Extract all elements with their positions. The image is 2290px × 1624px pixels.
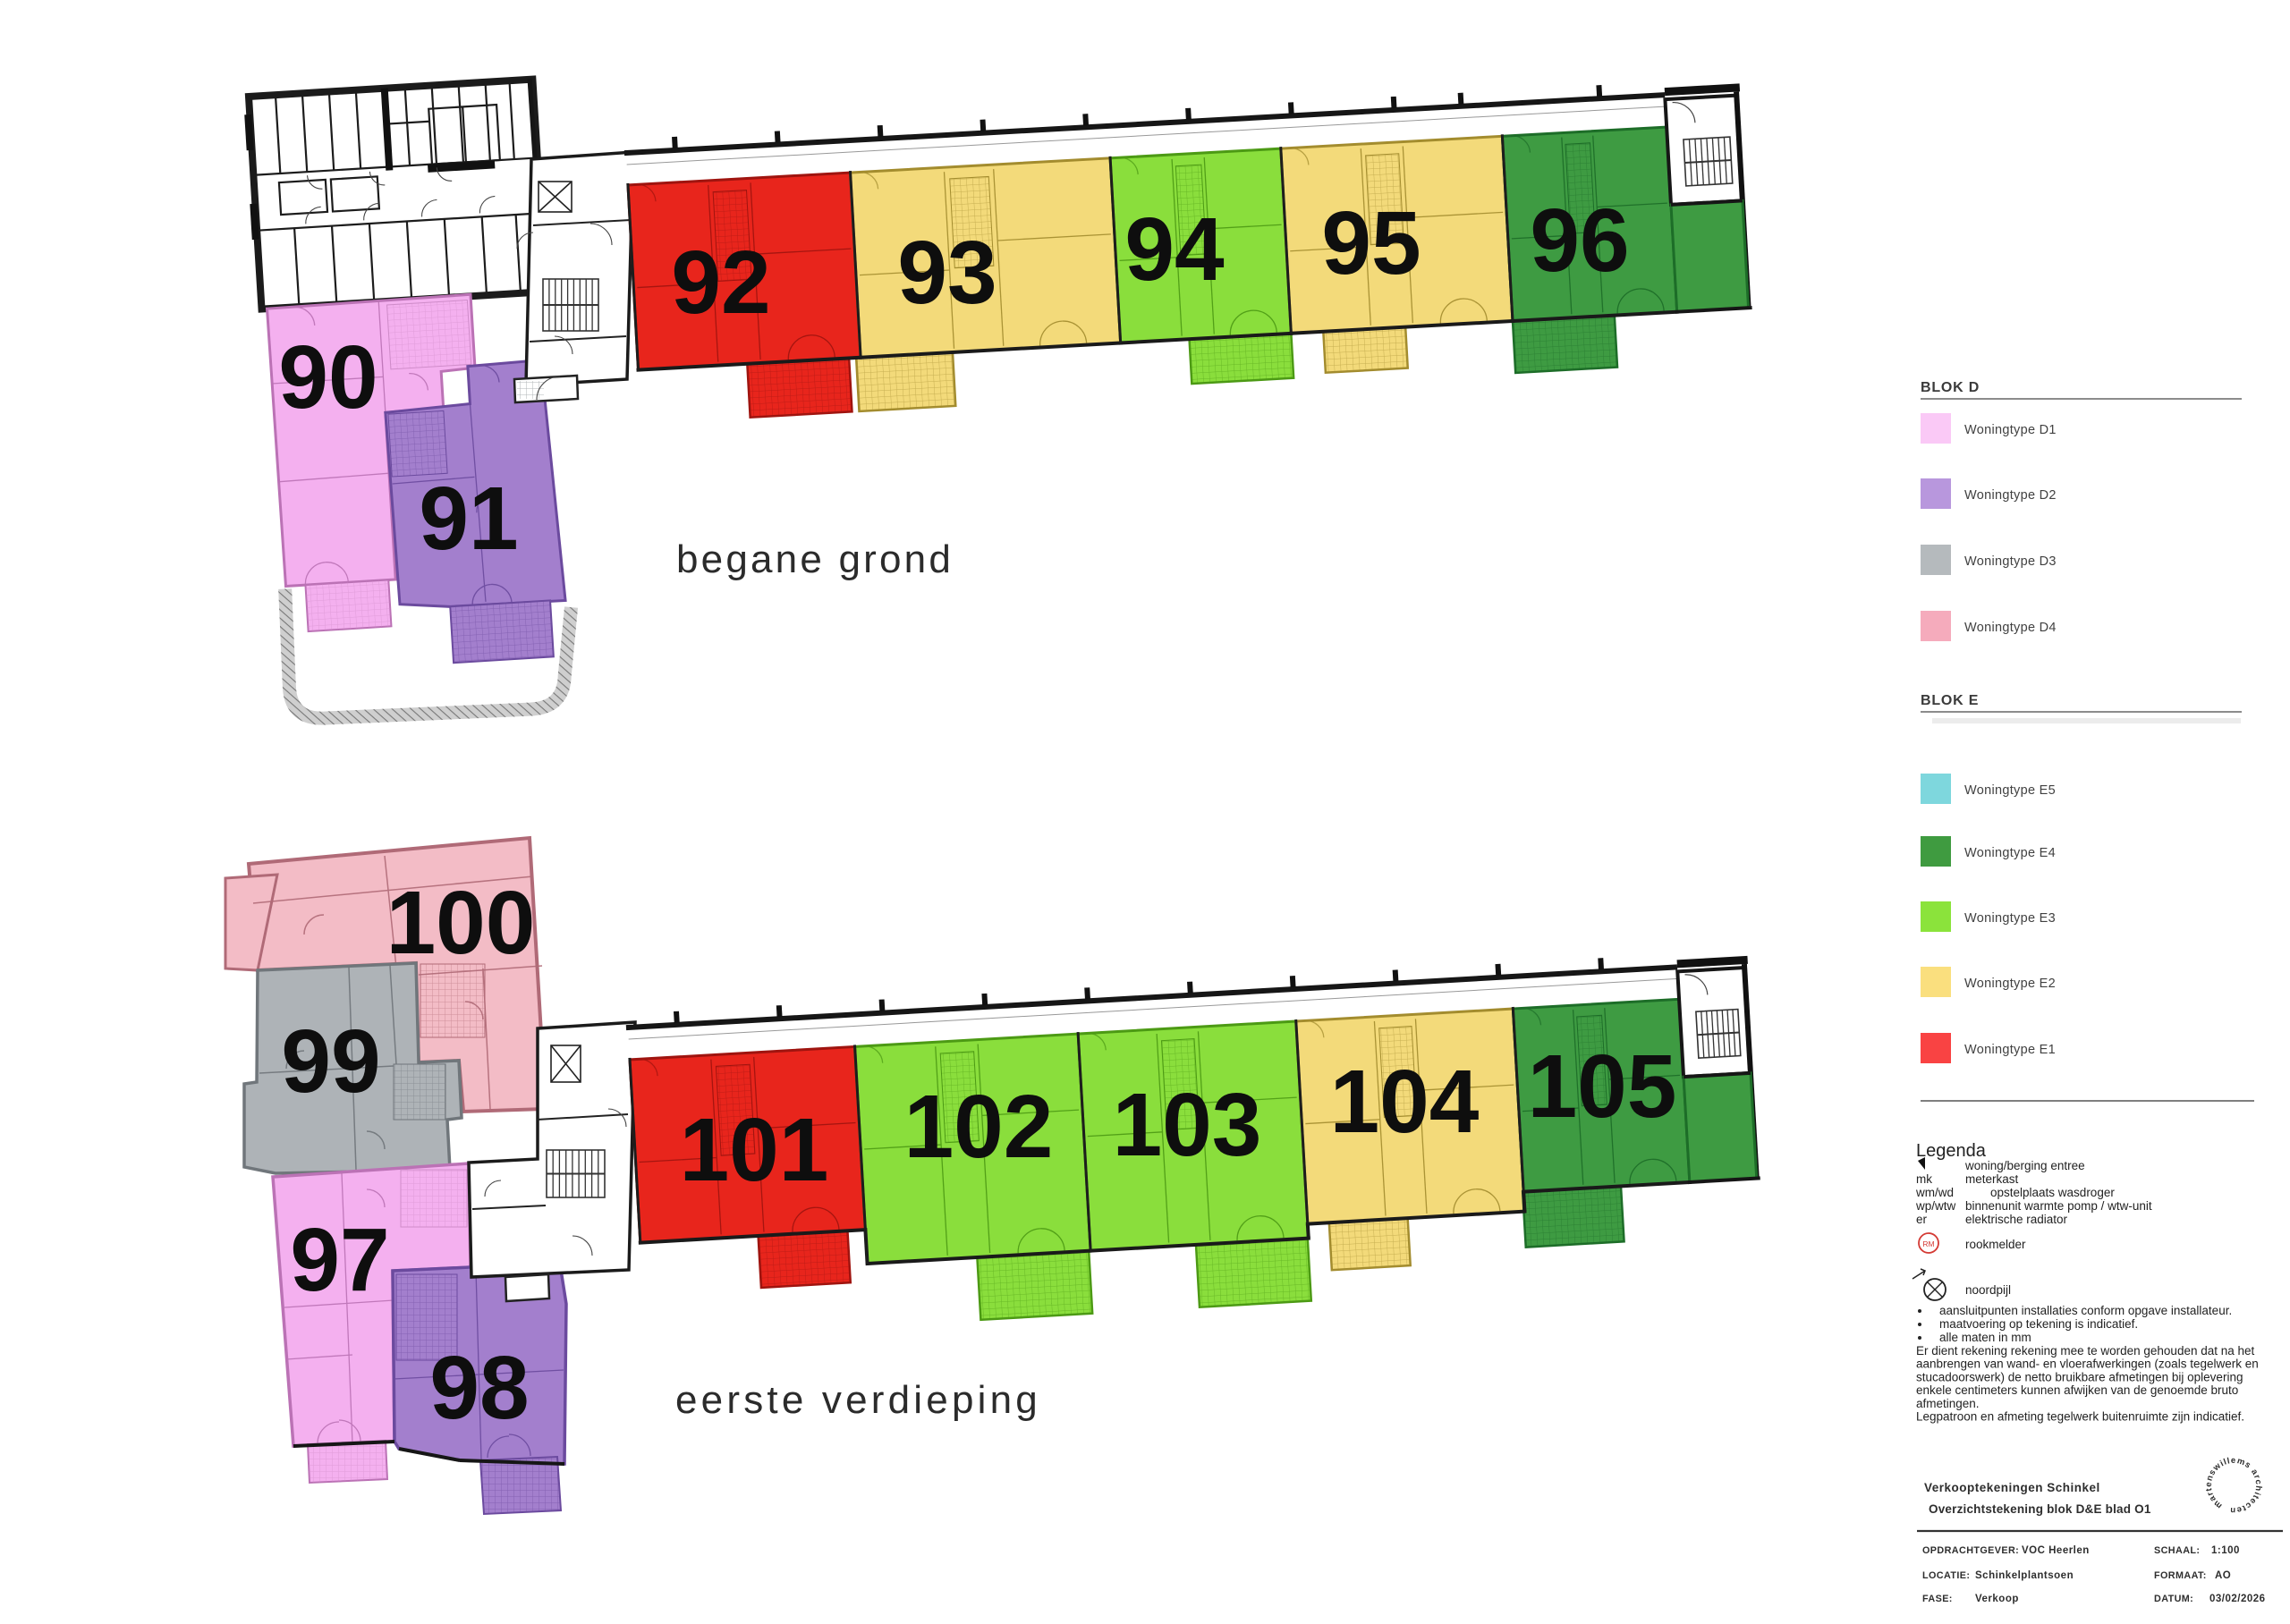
svg-text:BLOK D: BLOK D <box>1921 380 1980 395</box>
svg-text:afmetingen.: afmetingen. <box>1916 1397 1980 1410</box>
svg-text:wm/wd: wm/wd <box>1915 1186 1954 1199</box>
svg-text:Verkooptekeningen Schinkel: Verkooptekeningen Schinkel <box>1924 1481 2100 1494</box>
svg-text:opstelplaats wasdroger: opstelplaats wasdroger <box>1990 1186 2115 1199</box>
svg-text:103: 103 <box>1113 1075 1262 1175</box>
svg-text:95: 95 <box>1321 193 1421 293</box>
svg-text:Legenda: Legenda <box>1916 1141 1987 1161</box>
svg-text:03/02/2026: 03/02/2026 <box>2209 1594 2266 1604</box>
svg-text:Woningtype D4: Woningtype D4 <box>1964 621 2057 635</box>
svg-text:stucadoorswerk) de netto bruik: stucadoorswerk) de netto bruikbare afmet… <box>1916 1370 2243 1383</box>
svg-text:102: 102 <box>904 1077 1054 1177</box>
svg-text:alle maten in mm: alle maten in mm <box>1939 1331 2031 1344</box>
svg-text:FORMAAT:: FORMAAT: <box>2154 1570 2207 1581</box>
svg-text:BLOK E: BLOK E <box>1921 693 1979 708</box>
svg-text:maatvoering op tekening is ind: maatvoering op tekening is indicatief. <box>1939 1317 2138 1331</box>
svg-text:er: er <box>1916 1213 1928 1226</box>
svg-text:97: 97 <box>290 1210 389 1310</box>
svg-text:VOC Heerlen: VOC Heerlen <box>2022 1545 2090 1556</box>
svg-text:98: 98 <box>429 1338 529 1438</box>
svg-text:wp/wtw: wp/wtw <box>1915 1199 1956 1213</box>
svg-text:96: 96 <box>1530 190 1629 291</box>
svg-text:1:100: 1:100 <box>2211 1545 2240 1556</box>
svg-text:aansluitpunten installaties co: aansluitpunten installaties conform opga… <box>1939 1304 2232 1317</box>
svg-text:aanbrengen van wand- en vloera: aanbrengen van wand- en vloerafwerkingen… <box>1916 1358 2259 1371</box>
svg-text:Woningtype E4: Woningtype E4 <box>1964 846 2056 860</box>
svg-text:Woningtype E2: Woningtype E2 <box>1964 977 2056 991</box>
svg-text:92: 92 <box>671 233 770 333</box>
svg-text:elektrische radiator: elektrische radiator <box>1965 1213 2068 1226</box>
svg-text:eerste verdieping: eerste verdieping <box>675 1378 1041 1422</box>
svg-text:Woningtype E3: Woningtype E3 <box>1964 911 2056 926</box>
svg-text:Woningtype E5: Woningtype E5 <box>1964 783 2056 798</box>
svg-text:Schinkelplantsoen: Schinkelplantsoen <box>1975 1570 2074 1581</box>
svg-text:meterkast: meterkast <box>1965 1172 2019 1186</box>
svg-text:105: 105 <box>1528 1036 1677 1137</box>
svg-text:DATUM:: DATUM: <box>2154 1594 2193 1604</box>
svg-text:AO: AO <box>2215 1570 2231 1581</box>
svg-text:101: 101 <box>680 1100 829 1200</box>
svg-text:OPDRACHTGEVER:: OPDRACHTGEVER: <box>1922 1545 2019 1556</box>
svg-text:begane grond: begane grond <box>676 537 954 581</box>
svg-text:Woningtype E1: Woningtype E1 <box>1964 1043 2056 1057</box>
svg-text:woning/berging entree: woning/berging entree <box>1964 1159 2085 1172</box>
svg-text:Overzichtstekening blok D&E bl: Overzichtstekening blok D&E blad O1 <box>1929 1502 2151 1516</box>
svg-text:binnenunit warmte pomp / wtw-u: binnenunit warmte pomp / wtw-unit <box>1965 1199 2152 1213</box>
svg-text:93: 93 <box>897 223 997 323</box>
svg-text:Woningtype D1: Woningtype D1 <box>1964 423 2057 437</box>
svg-text:LOCATIE:: LOCATIE: <box>1922 1570 1970 1581</box>
svg-text:FASE:: FASE: <box>1922 1594 1953 1604</box>
svg-text:rookmelder: rookmelder <box>1965 1238 2026 1251</box>
svg-text:noordpijl: noordpijl <box>1965 1283 2011 1297</box>
svg-text:Woningtype D3: Woningtype D3 <box>1964 554 2057 569</box>
svg-text:Verkoop: Verkoop <box>1975 1594 2019 1604</box>
svg-text:Er dient rekening rekening mee: Er dient rekening rekening mee te worden… <box>1916 1344 2255 1358</box>
svg-text:enkele centimeters kunnen afwi: enkele centimeters kunnen afwijken van d… <box>1916 1383 2238 1397</box>
svg-text:100: 100 <box>386 873 536 973</box>
svg-text:RM: RM <box>1922 1239 1934 1248</box>
svg-text:94: 94 <box>1124 199 1225 300</box>
svg-text:90: 90 <box>278 327 377 427</box>
svg-text:Legpatroon en afmeting tegelwe: Legpatroon en afmeting tegelwerk buitenr… <box>1916 1410 2244 1424</box>
svg-text:99: 99 <box>281 1011 380 1112</box>
svg-text:104: 104 <box>1330 1052 1480 1152</box>
svg-text:Woningtype D2: Woningtype D2 <box>1964 488 2057 503</box>
svg-text:SCHAAL:: SCHAAL: <box>2154 1545 2200 1556</box>
svg-text:mk: mk <box>1916 1172 1932 1186</box>
svg-text:91: 91 <box>419 469 518 569</box>
